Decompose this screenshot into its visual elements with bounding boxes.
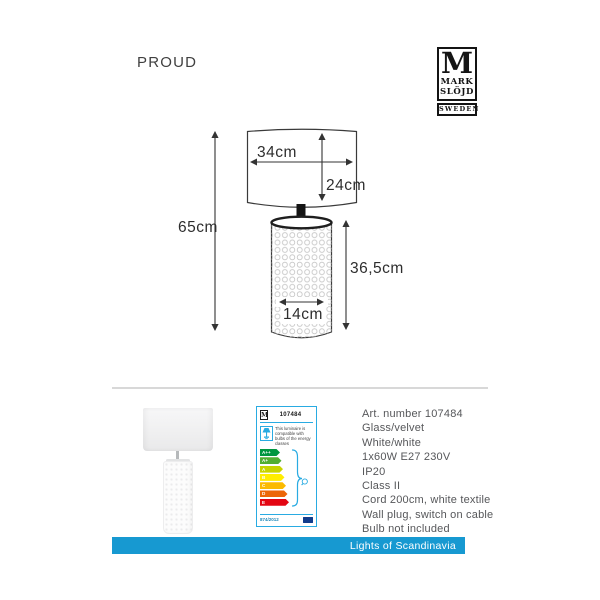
- base-cap: [272, 217, 332, 229]
- spec-sheet: PROUD M MARK SLÖJD SWEDEN: [0, 0, 600, 600]
- energy-compat-text: This luminaire is compatible with bulbs …: [275, 426, 313, 446]
- detail-line: Bulb not included: [362, 522, 493, 536]
- energy-class-C: C: [260, 482, 286, 489]
- detail-line: Class II: [362, 479, 493, 493]
- dim-shade-width: 34cm: [257, 144, 297, 162]
- energy-regulation: 874/2012: [260, 517, 279, 522]
- energy-label-brand-icon: M: [260, 410, 268, 420]
- energy-classes: A++A+ABCDE: [260, 449, 289, 507]
- dim-total-height: 65cm: [178, 219, 218, 237]
- product-details: Art. number 107484Glass/velvetWhite/whit…: [362, 407, 493, 537]
- detail-line: Glass/velvet: [362, 421, 493, 435]
- energy-label: M 107484 This luminaire is compatible wi…: [256, 406, 317, 527]
- footer-bar: Lights of Scandinavia: [112, 537, 465, 554]
- eu-flag-icon: [303, 517, 313, 524]
- energy-label-header: M 107484: [260, 410, 313, 423]
- dim-base-height: 36,5cm: [350, 260, 404, 278]
- energy-class-D: D: [260, 490, 288, 497]
- product-photo: [140, 406, 224, 533]
- photo-lampshade: [143, 408, 213, 451]
- energy-class-A++: A++: [260, 449, 280, 456]
- energy-class-B: B: [260, 474, 285, 481]
- energy-label-art-number: 107484: [268, 412, 313, 418]
- detail-line: Cord 200cm, white textile: [362, 493, 493, 507]
- dim-base-width: 14cm: [281, 306, 325, 324]
- energy-label-footer: 874/2012: [260, 514, 313, 524]
- energy-label-body: A++A+ABCDE: [260, 449, 313, 507]
- dim-shade-height: 24cm: [326, 177, 366, 195]
- energy-label-compat-row: This luminaire is compatible with bulbs …: [260, 426, 313, 446]
- detail-line: Art. number 107484: [362, 407, 493, 421]
- section-divider: [112, 387, 488, 389]
- luminaire-icon: [260, 426, 273, 441]
- detail-line: Wall plug, switch on cable: [362, 508, 493, 522]
- energy-class-E: E: [260, 499, 289, 506]
- shade-outline: [248, 129, 357, 207]
- detail-line: IP20: [362, 465, 493, 479]
- footer-brand-text: Lights of Scandinavia: [350, 540, 456, 552]
- energy-class-A: A: [260, 466, 283, 473]
- photo-base: [163, 461, 193, 534]
- energy-brace-icon: [291, 449, 309, 507]
- detail-line: 1x60W E27 230V: [362, 450, 493, 464]
- detail-line: White/white: [362, 436, 493, 450]
- energy-class-A+: A+: [260, 457, 282, 464]
